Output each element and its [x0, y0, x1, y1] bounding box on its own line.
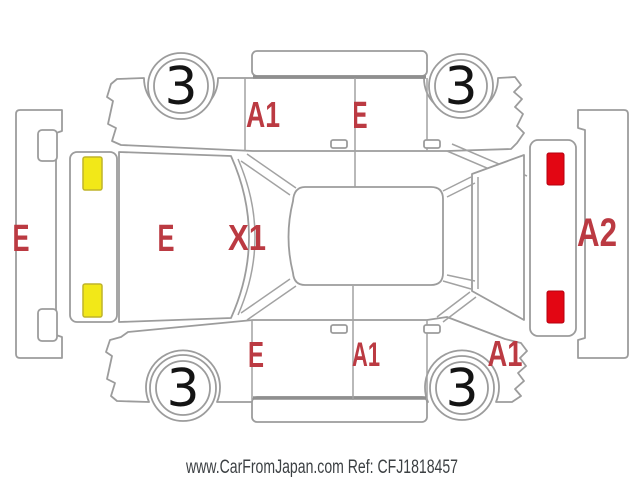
front-lamp-upper [38, 130, 57, 161]
wheel-bottom-right: 3 [430, 356, 494, 420]
front-lamp-lower [38, 309, 57, 341]
lower-front-door-handle [331, 325, 347, 333]
lower-rocker-sill [252, 397, 427, 422]
damage-marker-front-upper [83, 157, 102, 190]
c-pillar-lines [443, 177, 475, 289]
damage-code-hood: E [158, 218, 175, 260]
damage-marker-front-lower [83, 284, 102, 317]
damage-marker-rear-lower [547, 291, 564, 323]
lower-rear-door-handle [424, 325, 440, 333]
damage-marker-rear-upper [547, 153, 564, 185]
damage-code-front-bumper: E [13, 218, 30, 260]
rear-window [472, 155, 524, 320]
upper-rocker-sill [252, 51, 427, 76]
front-panel-view [70, 152, 117, 322]
diagram-canvas: 3 3 3 3 [0, 0, 640, 480]
watermark-text: www.CarFromJapan.com Ref: CFJ1818457 [185, 457, 458, 478]
damage-code-upper-front-door: A1 [246, 94, 280, 135]
damage-code-lower-rear-quarter: A1 [488, 333, 523, 374]
damage-code-lower-doors: A1 [352, 336, 380, 374]
wheel-grade: 3 [164, 57, 197, 117]
rear-panel-view [530, 140, 576, 336]
damage-code-windshield: X1 [228, 217, 266, 258]
upper-rear-door-handle [424, 140, 440, 148]
damage-code-rear-bumper: A2 [577, 211, 617, 255]
wheel-grade: 3 [444, 57, 477, 117]
wheel-bottom-left: 3 [150, 355, 216, 421]
upper-front-door-handle [331, 140, 347, 148]
damage-code-upper-rear-door: E [353, 95, 368, 137]
roof-panel [289, 187, 444, 285]
car-damage-diagram: 3 3 3 3 [0, 0, 640, 480]
wheel-grade: 3 [166, 359, 199, 419]
damage-code-lower-front-fender: E [248, 334, 264, 375]
wheel-grade: 3 [445, 359, 478, 419]
wheel-top-left: 3 [148, 53, 214, 119]
wheel-top-right: 3 [429, 54, 493, 118]
